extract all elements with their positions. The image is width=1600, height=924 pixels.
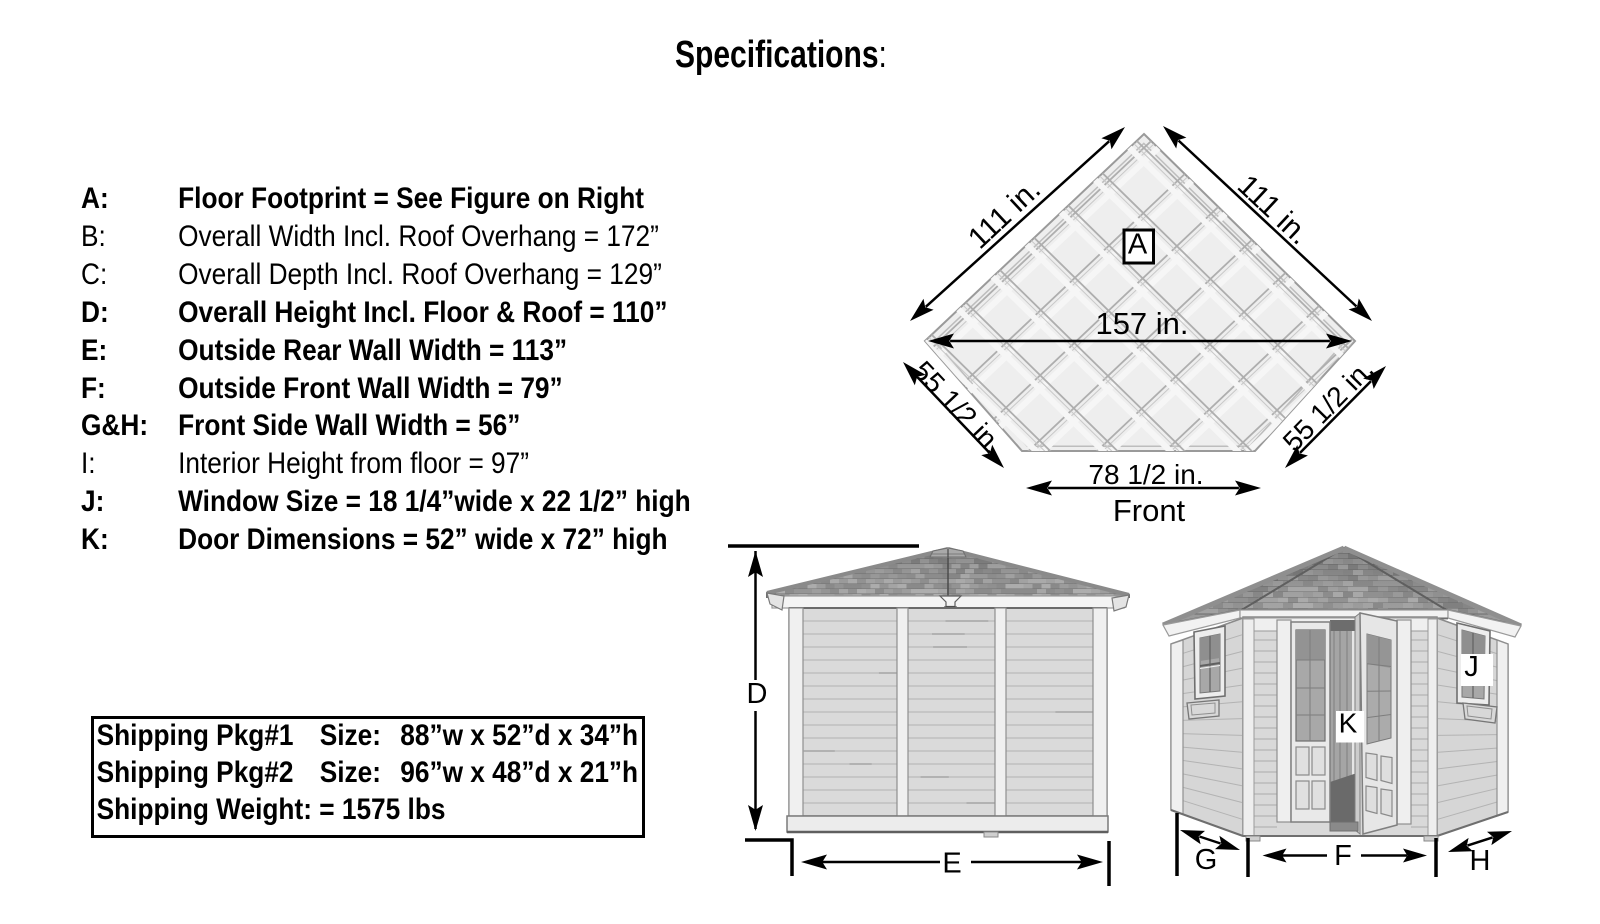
svg-text:K: K — [1339, 708, 1358, 739]
svg-text:H: H — [1470, 845, 1491, 877]
svg-text:F: F — [1334, 840, 1352, 872]
svg-text:D: D — [747, 678, 768, 710]
svg-text:J: J — [1464, 651, 1479, 683]
svg-text:G: G — [1195, 844, 1218, 876]
svg-text:78 1/2 in.: 78 1/2 in. — [1088, 459, 1203, 490]
svg-text:E: E — [942, 848, 961, 880]
svg-text:Front: Front — [1113, 493, 1186, 528]
svg-text:157 in.: 157 in. — [1095, 306, 1188, 341]
svg-text:A: A — [1128, 229, 1148, 261]
